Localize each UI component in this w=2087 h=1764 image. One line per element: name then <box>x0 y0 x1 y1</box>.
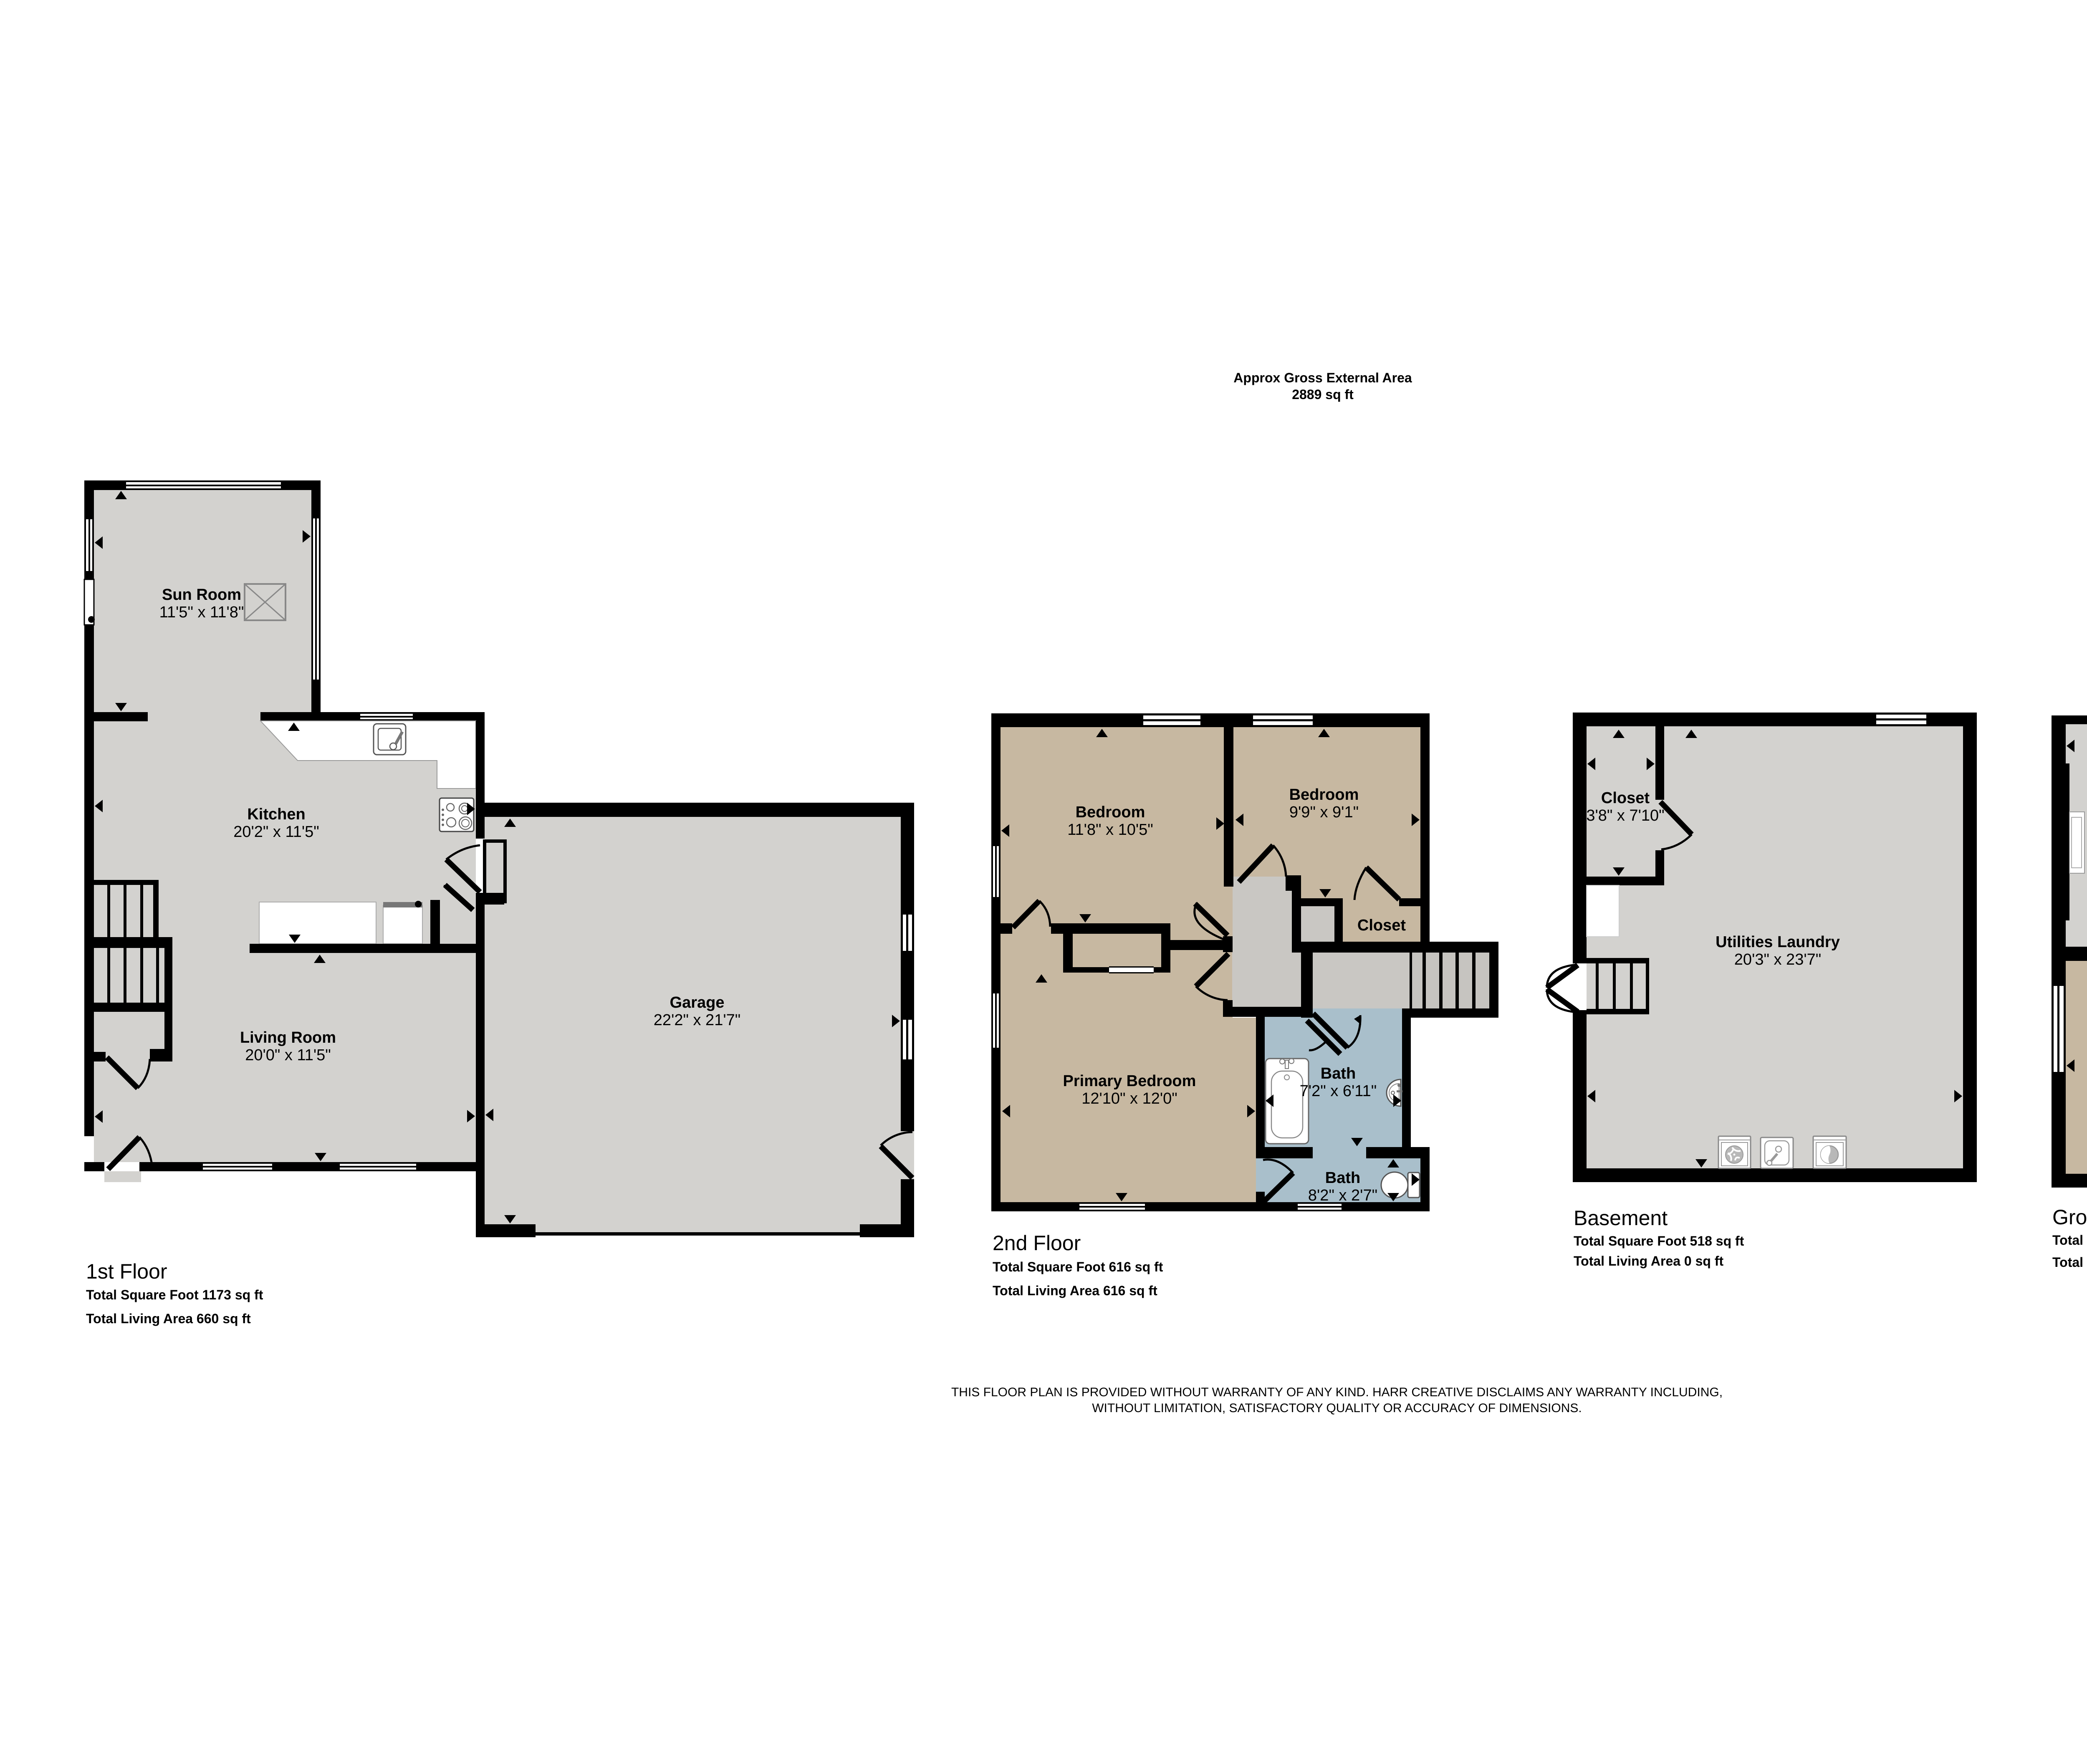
svg-text:Total Square Foot 582 sq ft: Total Square Foot 582 sq ft <box>2052 1233 2087 1248</box>
svg-text:Bedroom: Bedroom <box>1076 804 1145 821</box>
svg-text:Total Square Foot 616 sq ft: Total Square Foot 616 sq ft <box>993 1259 1163 1274</box>
svg-text:Utilities Laundry: Utilities Laundry <box>1716 933 1840 951</box>
svg-text:Total Living Area 660 sq ft: Total Living Area 660 sq ft <box>86 1311 251 1326</box>
svg-text:Garage: Garage <box>670 994 725 1011</box>
svg-text:Living Room: Living Room <box>240 1029 336 1046</box>
svg-text:Bath: Bath <box>1321 1065 1356 1082</box>
svg-text:THIS FLOOR PLAN IS PROVIDED WI: THIS FLOOR PLAN IS PROVIDED WITHOUT WARR… <box>951 1385 1723 1399</box>
svg-text:Ground Floor: Ground Floor <box>2052 1205 2087 1229</box>
svg-text:9'9" x 9'1": 9'9" x 9'1" <box>1289 804 1359 821</box>
svg-text:Closet: Closet <box>1357 917 1406 934</box>
svg-text:2889 sq ft: 2889 sq ft <box>1292 387 1354 402</box>
svg-text:Total Living Area 0 sq ft: Total Living Area 0 sq ft <box>1574 1254 1724 1269</box>
svg-text:7'2" x 6'11": 7'2" x 6'11" <box>1300 1082 1377 1100</box>
svg-text:12'10" x 12'0": 12'10" x 12'0" <box>1081 1090 1177 1107</box>
svg-text:Total Square Foot 518 sq ft: Total Square Foot 518 sq ft <box>1574 1233 1744 1248</box>
svg-text:20'0" x 11'5": 20'0" x 11'5" <box>245 1046 331 1064</box>
svg-text:WITHOUT LIMITATION, SATISFACTO: WITHOUT LIMITATION, SATISFACTORY QUALITY… <box>1092 1401 1582 1415</box>
svg-text:Bath: Bath <box>1325 1169 1360 1187</box>
svg-text:22'2" x 21'7": 22'2" x 21'7" <box>654 1011 740 1029</box>
svg-text:Bedroom: Bedroom <box>1289 786 1359 804</box>
svg-text:Total Square Foot 1173 sq ft: Total Square Foot 1173 sq ft <box>86 1287 263 1302</box>
svg-text:11'8" x 10'5": 11'8" x 10'5" <box>1067 821 1153 839</box>
svg-text:11'5" x 11'8": 11'5" x 11'8" <box>159 604 244 621</box>
svg-text:2nd Floor: 2nd Floor <box>993 1231 1081 1255</box>
svg-text:20'2" x 11'5": 20'2" x 11'5" <box>233 823 319 841</box>
svg-text:Total Living Area 582 sq ft: Total Living Area 582 sq ft <box>2052 1255 2087 1270</box>
svg-text:Primary Bedroom: Primary Bedroom <box>1063 1072 1196 1090</box>
svg-text:Sun Room: Sun Room <box>162 586 241 604</box>
svg-text:Kitchen: Kitchen <box>247 806 305 823</box>
svg-text:3'8" x 7'10": 3'8" x 7'10" <box>1586 807 1664 824</box>
svg-text:Basement: Basement <box>1574 1206 1668 1230</box>
svg-text:1st Floor: 1st Floor <box>86 1260 167 1283</box>
svg-text:8'2" x 2'7": 8'2" x 2'7" <box>1308 1187 1377 1204</box>
svg-text:Total Living Area 616 sq ft: Total Living Area 616 sq ft <box>993 1283 1157 1298</box>
svg-text:20'3" x 23'7": 20'3" x 23'7" <box>1734 951 1821 968</box>
svg-text:Approx Gross External Area: Approx Gross External Area <box>1233 370 1412 385</box>
svg-text:Closet: Closet <box>1601 789 1650 807</box>
